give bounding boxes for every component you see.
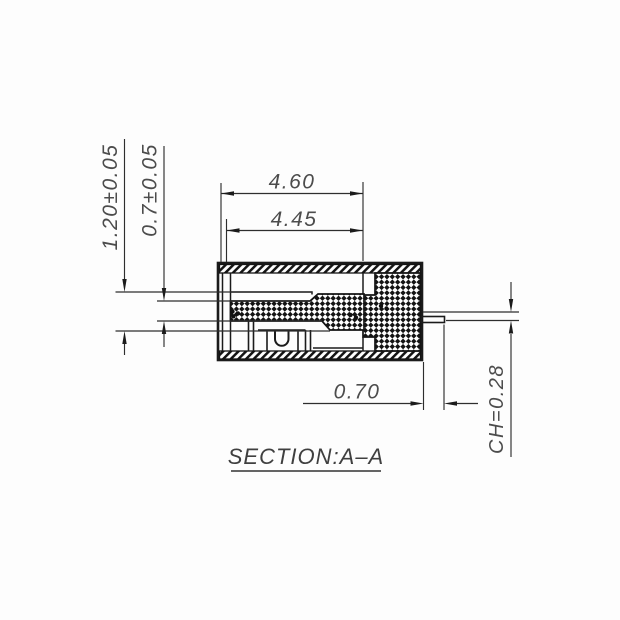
center-contact <box>231 294 365 330</box>
dim-total-height-label: 1.20±0.05 <box>99 144 122 251</box>
dim-pin-protrusion-label: 0.70 <box>334 381 381 404</box>
dim-top-widths: 4.60 4.45 <box>221 171 363 263</box>
dim-outer-width-label: 4.60 <box>269 171 316 194</box>
arrowheads-left <box>122 279 166 344</box>
top-wall-hatch <box>220 265 421 274</box>
drawing-canvas: 4.60 4.45 1.20±0.05 0.7±0.05 <box>0 0 620 620</box>
insulator-block <box>363 273 421 351</box>
arrowheads-chamfer <box>509 299 513 334</box>
contact-pin <box>422 317 445 323</box>
section-drawing-svg: 4.60 4.45 1.20±0.05 0.7±0.05 <box>0 0 620 620</box>
arrowheads-pin <box>411 401 458 405</box>
section-title: SECTION:A–A <box>228 444 384 469</box>
bottom-wall-hatch <box>220 351 421 359</box>
connector-body <box>218 263 445 360</box>
dim-inner-width-label: 4.45 <box>271 208 318 231</box>
dim-contact-height-label: 0.7±0.05 <box>139 143 162 237</box>
section-title-group: SECTION:A–A <box>228 444 384 471</box>
dim-chamfer: CH=0.28 <box>423 282 519 457</box>
dim-chamfer-label: CH=0.28 <box>486 364 508 454</box>
